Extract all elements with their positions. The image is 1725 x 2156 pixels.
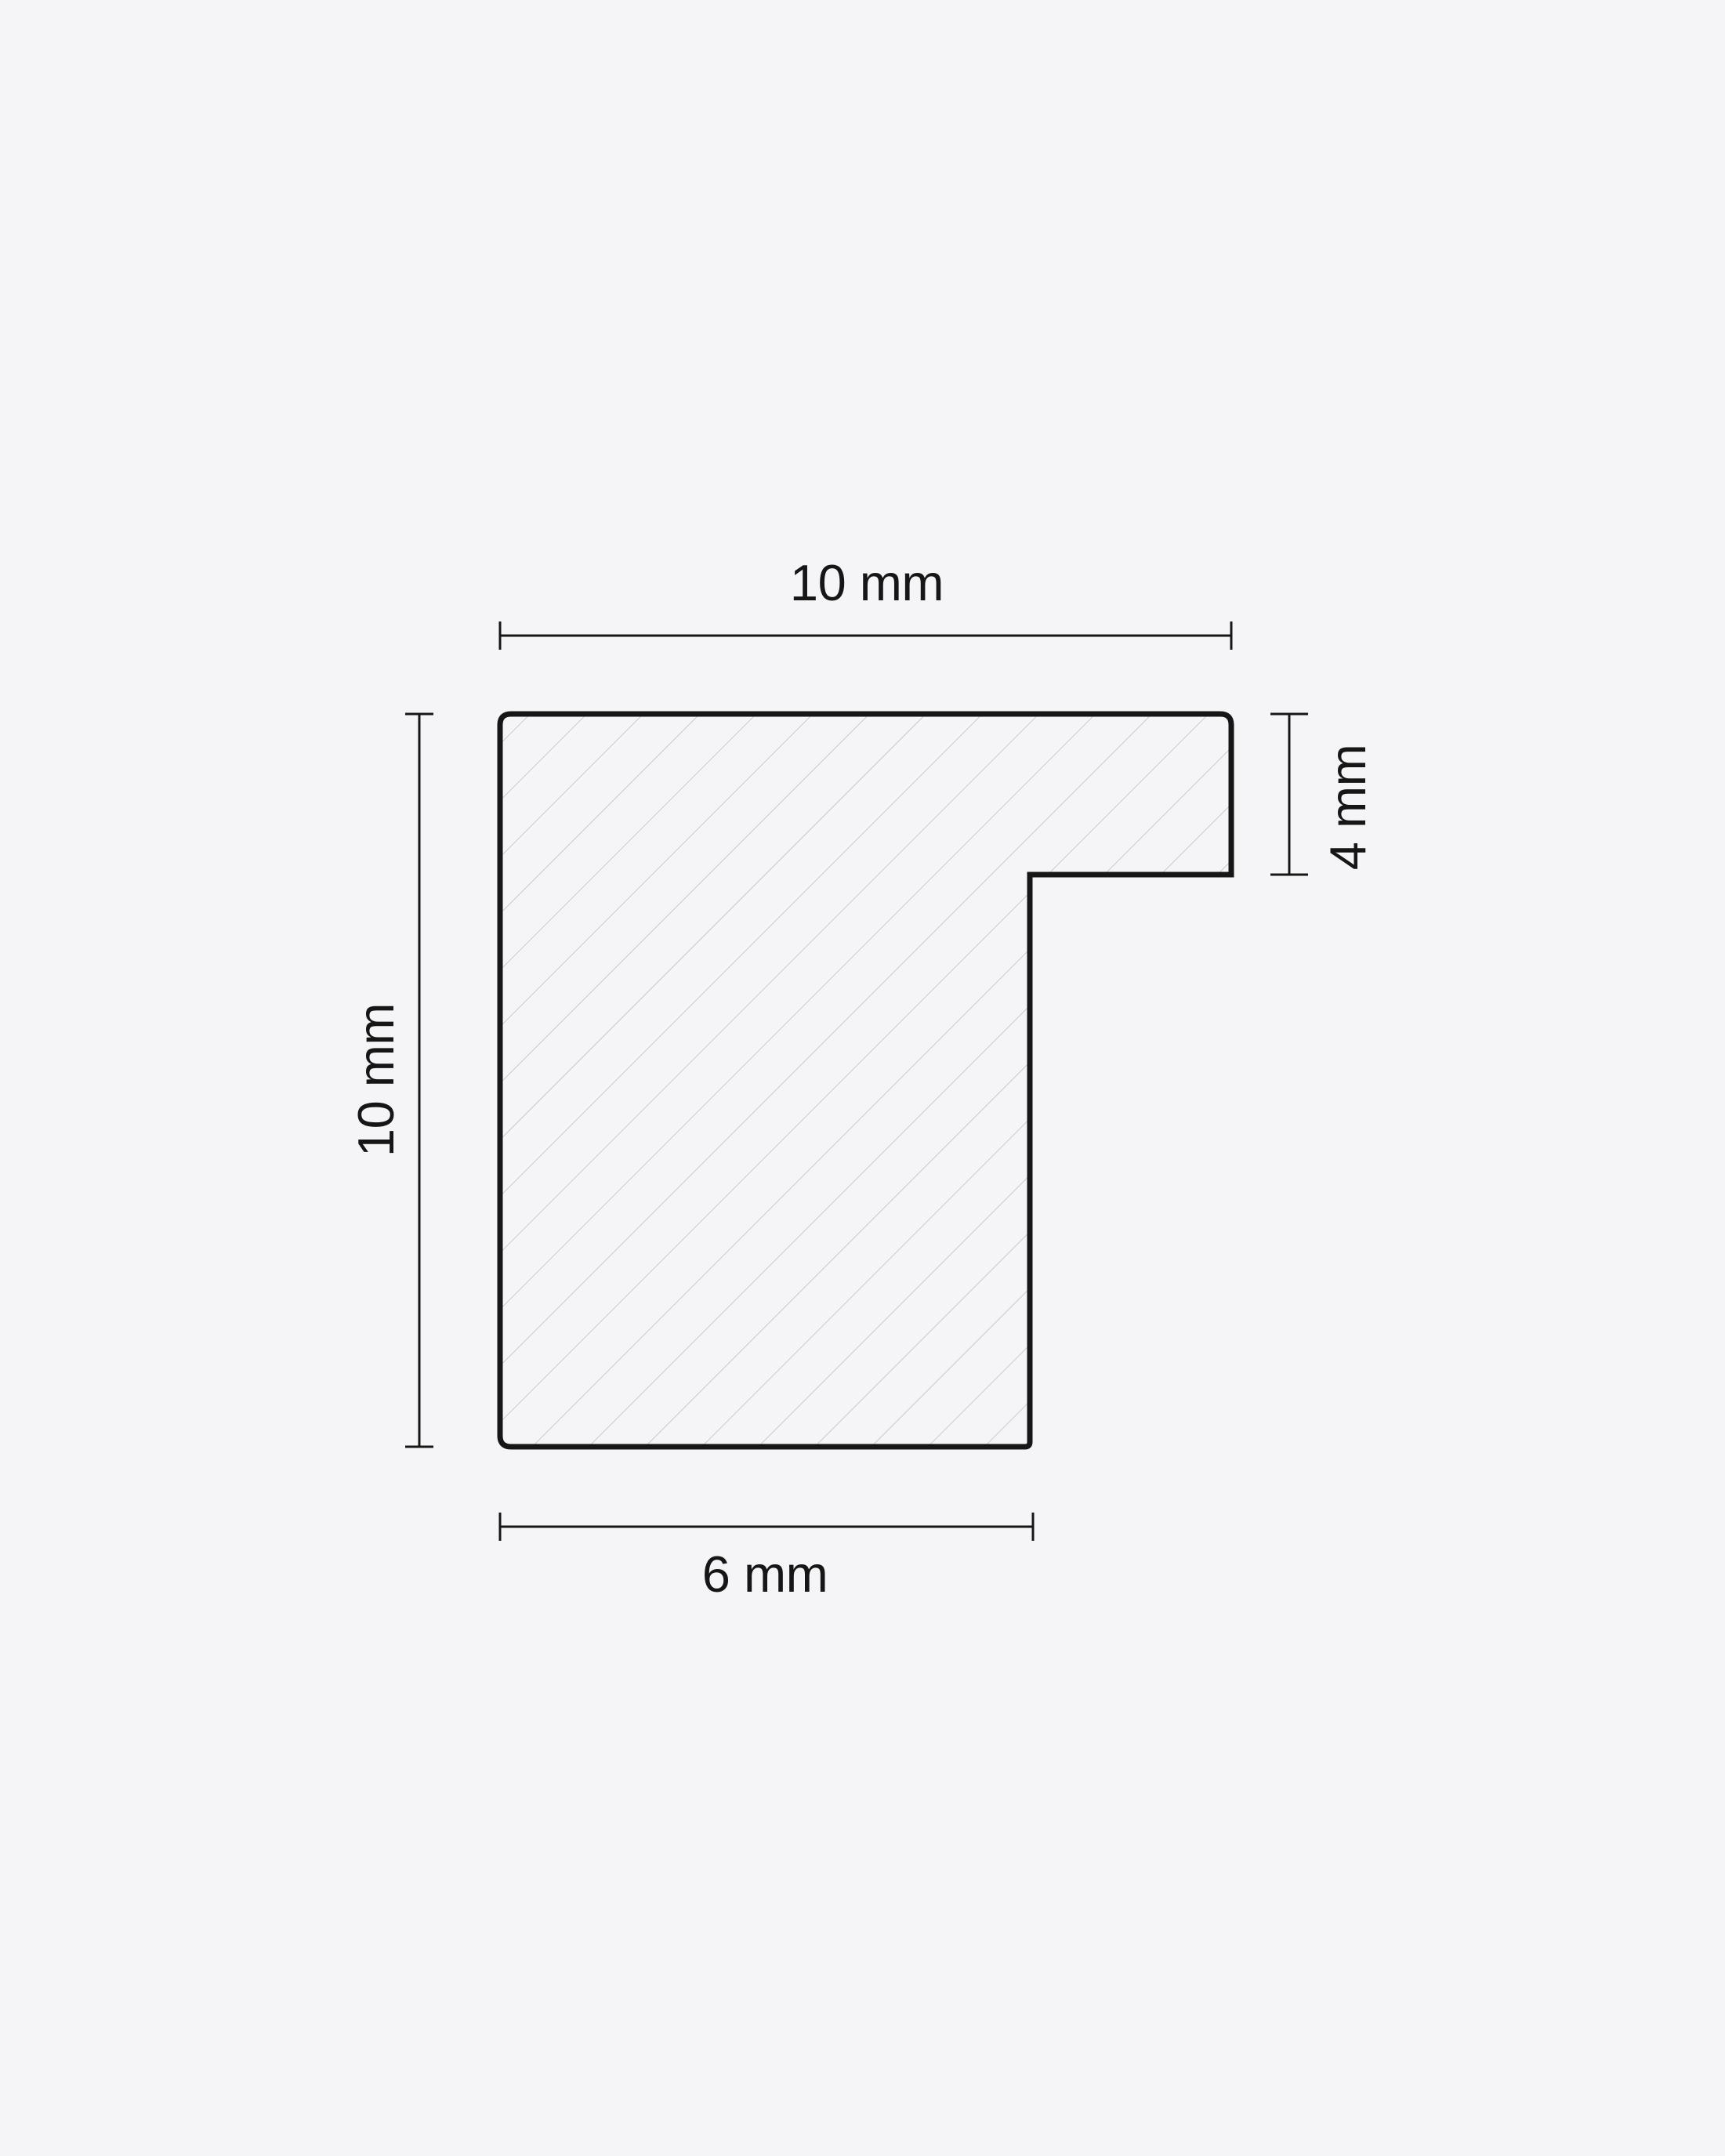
dimension-bottom: 6 mm	[500, 1513, 1033, 1603]
dimension-top: 10 mm	[500, 554, 1231, 650]
dimension-right: 4 mm	[1270, 714, 1376, 875]
dim-label-left: 10 mm	[347, 1003, 404, 1157]
profile-diagram-svg: 10 mm 10 mm 4 mm 6 mm	[0, 0, 1725, 2156]
dimension-left: 10 mm	[347, 714, 433, 1447]
dim-label-bottom: 6 mm	[702, 1545, 828, 1603]
dim-label-top: 10 mm	[790, 554, 944, 611]
profile-outline	[500, 714, 1231, 1447]
dim-label-right: 4 mm	[1319, 745, 1376, 871]
diagram-canvas: 10 mm 10 mm 4 mm 6 mm	[0, 0, 1725, 2156]
